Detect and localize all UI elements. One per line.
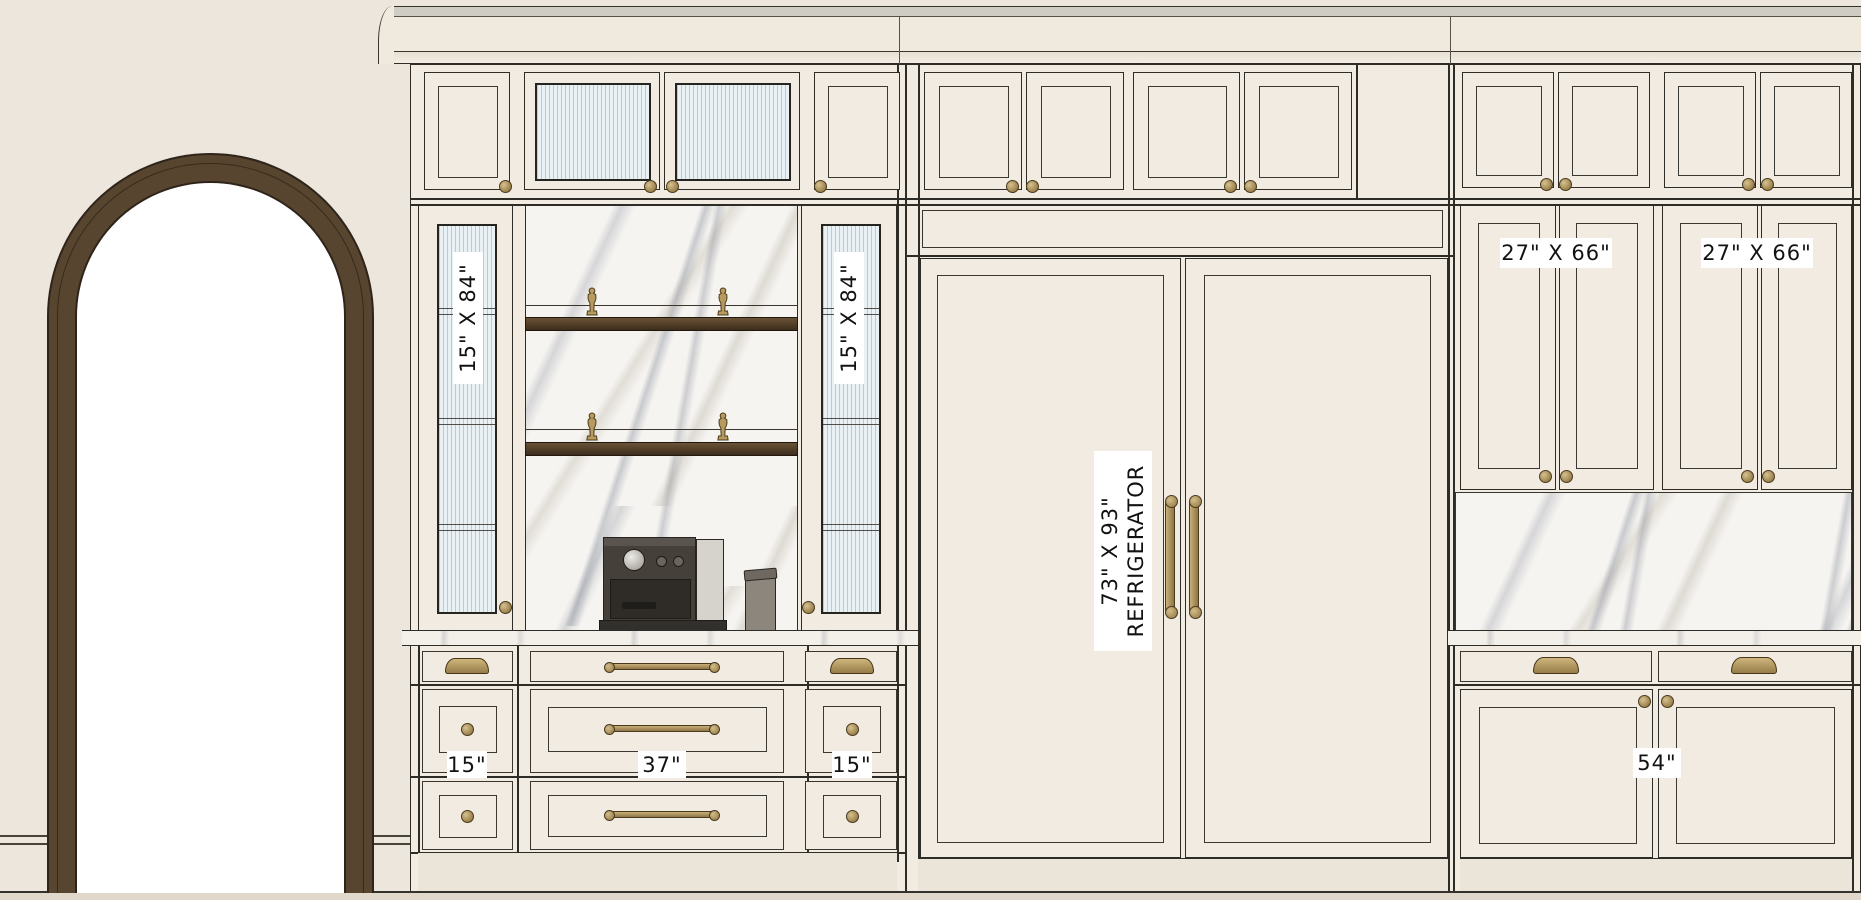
chair-rail — [0, 835, 48, 837]
machine-group-recess — [610, 579, 691, 619]
cabinet-knob — [1560, 470, 1573, 483]
cabinet-knob — [814, 180, 827, 193]
base-stile — [517, 646, 519, 852]
refrigerator-door — [1185, 258, 1448, 858]
base-cabinet-door — [1658, 689, 1852, 858]
upper-glass-door — [664, 72, 800, 190]
cabinet-knob — [499, 180, 512, 193]
bar-pull — [606, 663, 718, 670]
cabinet-knob — [1761, 178, 1774, 191]
fridge-handle — [1165, 500, 1175, 614]
dimension-label: 15" — [832, 751, 872, 778]
door-panel — [1676, 707, 1835, 844]
chair-rail — [0, 843, 48, 845]
base-cabinet-door — [1460, 689, 1653, 858]
wood-shelf — [525, 442, 798, 456]
cabinet-knob — [1638, 695, 1651, 708]
dimension-text: 27" X 66" — [1702, 241, 1812, 265]
refrigerator-label: 73" X 93" REFRIGERATOR — [1094, 451, 1152, 651]
cabinet-knob — [1540, 178, 1553, 191]
countertop — [402, 630, 918, 646]
crown-return — [378, 6, 394, 64]
machine-water-tank — [696, 539, 724, 630]
countertop — [1448, 630, 1861, 646]
refrigerator-name-text: REFRIGERATOR — [1123, 465, 1149, 638]
dimension-text: 15" X 84" — [456, 263, 480, 373]
espresso-machine — [603, 537, 696, 632]
dimension-text: 37" — [642, 753, 681, 777]
upper-glass-door — [524, 72, 660, 190]
machine-knob — [656, 556, 667, 567]
cup-pull — [830, 658, 874, 674]
dimension-label: 54" — [1633, 748, 1681, 778]
door-panel — [1041, 86, 1111, 178]
dimension-text: 27" X 66" — [1501, 241, 1611, 265]
upper-cabinet-door — [1760, 72, 1852, 188]
cabinet-knob — [802, 601, 815, 614]
bar-pull — [606, 811, 718, 818]
cup-pull — [1533, 657, 1579, 674]
door-panel — [1678, 86, 1744, 176]
bar-pull — [606, 725, 718, 732]
crown-molding — [392, 52, 1861, 64]
upper-cabinet-door — [1026, 72, 1124, 190]
filler-panel — [922, 210, 1443, 248]
base-rail — [1453, 684, 1861, 686]
upper-cabinet-door — [1462, 72, 1554, 188]
cabinet-knob — [1539, 470, 1552, 483]
machine-portafilter — [622, 602, 656, 609]
urn-finial — [584, 412, 600, 442]
cabinet-knob — [499, 601, 512, 614]
urn-finial — [715, 412, 731, 442]
upper-cabinet-door — [424, 72, 510, 190]
filler-rail — [905, 255, 1453, 257]
door-panel — [939, 86, 1009, 178]
urn-finial — [715, 287, 731, 317]
urn-finial — [584, 287, 600, 317]
fridge-handle — [1189, 500, 1199, 614]
base-stile — [418, 646, 420, 852]
section-stile — [1453, 64, 1455, 891]
crown-seam — [899, 17, 900, 64]
cabinet-knob — [1026, 180, 1039, 193]
cabinet-knob — [461, 810, 474, 823]
chair-rail — [372, 835, 412, 837]
elevation-drawing: 15" X 84" 15" X 84" — [0, 0, 1861, 900]
dimension-label: 15" X 84" — [453, 252, 483, 384]
floor-strip — [0, 893, 1861, 900]
toe-kick — [918, 858, 1448, 891]
wood-shelf — [525, 317, 798, 331]
door-panel — [1479, 707, 1637, 844]
dimension-label: 15" — [447, 751, 487, 778]
door-panel — [1259, 86, 1339, 178]
machine-top-band — [604, 538, 695, 546]
cabinet-knob — [666, 180, 679, 193]
cabinet-knob — [461, 723, 474, 736]
dimension-label: 37" — [638, 751, 686, 778]
toe-kick — [418, 852, 897, 891]
cabinet-knob — [1741, 470, 1754, 483]
door-panel — [1476, 86, 1542, 176]
dimension-text: 54" — [1637, 751, 1676, 775]
upper-cabinet-door — [1133, 72, 1240, 190]
upper-cabinet-door — [1558, 72, 1650, 188]
arch-doorway — [47, 153, 374, 893]
upper-rail — [410, 198, 1861, 200]
upper-cabinet-door — [814, 72, 900, 190]
dimension-label: 15" X 84" — [834, 252, 864, 384]
crown-seam — [1450, 17, 1451, 64]
section-stile — [1852, 64, 1854, 891]
upper-cabinet-door — [1244, 72, 1352, 190]
cabinet-knob — [1244, 180, 1257, 193]
cup-pull — [1731, 657, 1777, 674]
gallery-rail — [525, 305, 798, 306]
crown-molding — [392, 17, 1861, 52]
door-panel — [438, 86, 498, 178]
dimension-label: 27" X 66" — [1500, 238, 1612, 268]
refrigerator-size-text: 73" X 93" — [1097, 496, 1123, 606]
cabinet-knob — [1224, 180, 1237, 193]
chair-rail — [372, 843, 412, 845]
cabinet-knob — [846, 810, 859, 823]
cabinet-knob — [1661, 695, 1674, 708]
cabinet-knob — [1559, 178, 1572, 191]
cabinet-knob — [1006, 180, 1019, 193]
arch-opening — [75, 181, 346, 893]
cabinet-knob — [1762, 470, 1775, 483]
section-stile — [905, 64, 907, 891]
dimension-text: 15" — [447, 753, 486, 777]
fluted-glass-pane — [535, 83, 651, 181]
door-panel — [1572, 86, 1638, 176]
upper-filler-stile — [1356, 64, 1358, 198]
upper-cabinet-door — [1664, 72, 1756, 188]
fluted-glass-pane — [675, 83, 791, 181]
cabinet-knob — [846, 723, 859, 736]
door-panel — [1148, 86, 1227, 178]
machine-dial — [623, 549, 645, 571]
dimension-text: 15" X 84" — [837, 263, 861, 373]
machine-knob — [673, 556, 684, 567]
cabinet-knob — [644, 180, 657, 193]
door-panel — [1774, 86, 1840, 176]
toe-kick — [1460, 858, 1852, 891]
base-rail — [410, 684, 905, 686]
door-panel — [828, 86, 888, 178]
section-stile — [1448, 64, 1450, 891]
crown-molding — [392, 6, 1861, 17]
cup-pull — [445, 658, 489, 674]
marble-backsplash — [1455, 492, 1852, 632]
gallery-rail — [525, 429, 798, 430]
dimension-label: 27" X 66" — [1701, 238, 1813, 268]
dimension-text: 15" — [832, 753, 871, 777]
cabinet-knob — [1742, 178, 1755, 191]
door-outline — [1204, 275, 1431, 843]
canister — [745, 578, 776, 632]
upper-cabinet-door — [924, 72, 1022, 190]
